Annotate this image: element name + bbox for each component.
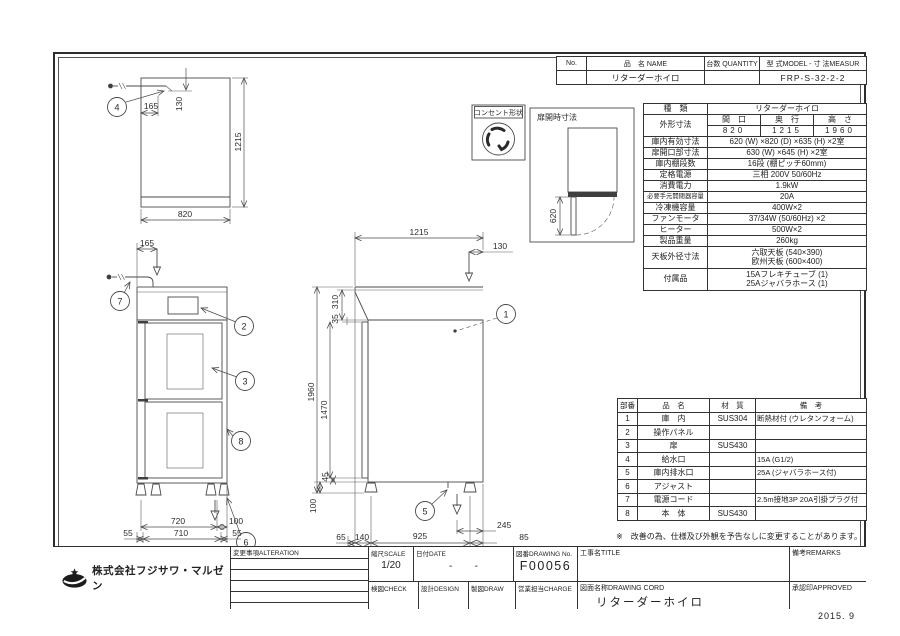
- title-cell: 工事名TITLE: [577, 547, 789, 581]
- balloon-8: 8: [238, 437, 243, 447]
- balloon-1: 1: [503, 310, 508, 320]
- date-value: - -: [414, 561, 513, 572]
- spec-label: ファンモータ: [644, 214, 708, 225]
- dim-side-245: 245: [497, 520, 511, 530]
- scale-cell: 縮尺SCALE 1/20: [368, 547, 413, 581]
- issue-date: 2015. 9: [818, 611, 855, 621]
- company-name: 株式会社フジサワ・マルゼン: [92, 563, 230, 593]
- spec-label: 付属品: [644, 269, 708, 291]
- water-inlet-icon: [108, 83, 172, 91]
- dim-side-310: 310: [330, 295, 340, 309]
- date-cell: 日付DATE - -: [413, 547, 513, 581]
- door-open-detail: 扉開時寸法 620: [530, 108, 634, 242]
- dim-front-165: 165: [140, 238, 154, 248]
- parts-header-remarks: 備 考: [756, 399, 867, 413]
- spec-value: リターダーホイロ: [708, 104, 867, 115]
- spec-value: 620 (W) ×820 (D) ×635 (H) ×2室: [708, 137, 867, 148]
- spec-value: 37/34W (50/60Hz) ×2: [708, 214, 867, 225]
- spec-value: 400W×2: [708, 203, 867, 214]
- dim-front-710: 710: [174, 528, 188, 538]
- product-name: リターダーホイロ: [587, 71, 705, 85]
- col-model-header: 型 式MODEL - 寸 法MEASUR: [760, 57, 867, 71]
- spec-label: ヒーター: [644, 225, 708, 236]
- spec-label: 扉開口部寸法: [644, 148, 708, 159]
- side-view: 1215 130 310 35 1960 1470 45 100: [306, 227, 529, 546]
- dim-side-140: 140: [355, 532, 369, 542]
- dim-side-65: 65: [336, 532, 346, 542]
- outlet-shape-detail: コンセント形状: [472, 105, 525, 160]
- alteration-empty-row: [231, 591, 368, 602]
- spec-label: 消費電力: [644, 181, 708, 192]
- alteration-empty-row: [231, 602, 368, 613]
- locking-outlet-icon: [487, 128, 508, 149]
- charge-cell: 営業担当CHARGE: [515, 581, 577, 609]
- draw-cell: 製図DRAW: [468, 581, 515, 609]
- col-name-header: 品 名 NAME: [587, 57, 705, 71]
- spec-value: 1.9kW: [708, 181, 867, 192]
- alteration-empty-row: [231, 580, 368, 591]
- spec-value: 16段 (棚ピッチ60mm): [708, 159, 867, 170]
- alteration-empty-row: [231, 569, 368, 580]
- dim-door-open-620: 620: [548, 209, 558, 223]
- spec-label: 定格電源: [644, 170, 708, 181]
- dim-front-100: 100: [229, 516, 243, 526]
- front-view: 165 720 100 55 710 55 7 2 3 8 6: [107, 238, 256, 552]
- parts-row: 1庫 内SUS304断熱材付 (ウレタンフォーム): [618, 412, 867, 426]
- dim-side-1960: 1960: [306, 382, 316, 401]
- dim-plan-165: 165: [144, 101, 158, 111]
- spec-label: 天板外径寸法: [644, 247, 708, 269]
- design-cell: 設計DESIGN: [418, 581, 468, 609]
- scale-value: 1/20: [369, 560, 413, 571]
- plan-view: 165 130 820 1215 4: [108, 68, 249, 224]
- balloon-5: 5: [422, 507, 427, 517]
- parts-row: 4給水口15A (G1/2): [618, 453, 867, 467]
- dim-side-45: 45: [320, 472, 330, 482]
- spec-label: 製品重量: [644, 236, 708, 247]
- name-model-table: No. 品 名 NAME 台数 QUANTITY 型 式MODEL - 寸 法M…: [556, 56, 867, 85]
- outlet-shape-label: コンセント形状: [474, 108, 523, 117]
- balloon-2: 2: [241, 322, 246, 332]
- dim-side-925: 925: [413, 531, 427, 541]
- spec-value: 欧州天板 (600×400): [709, 258, 865, 266]
- parts-row: 2操作パネル: [618, 426, 867, 440]
- company-logo: [61, 567, 88, 589]
- dim-front-55r: 55: [232, 528, 242, 538]
- dim-plan-130: 130: [174, 97, 184, 111]
- spec-label: 必要手元開閉器容量: [644, 192, 708, 203]
- parts-header-no: 部番: [618, 399, 638, 413]
- parts-row: 8本 体SUS430: [618, 507, 867, 521]
- spec-label: 冷凍機容量: [644, 203, 708, 214]
- drawing-cord-cell: 図面名称DRAWING CORD リターダーホイロ: [577, 581, 789, 609]
- dim-front-720: 720: [171, 516, 185, 526]
- spec-label: 外形寸法: [644, 115, 708, 137]
- dim-side-100: 100: [308, 499, 318, 513]
- door-open-label: 扉開時寸法: [537, 112, 577, 122]
- spec-label: 種 類: [644, 104, 708, 115]
- alteration-table: 変更事項ALTERATION: [230, 547, 368, 609]
- drawing-title: リターダーホイロ: [596, 594, 704, 610]
- dim-plan-1215: 1215: [233, 132, 243, 151]
- spec-value: 630 (W) ×645 (H) ×2室: [708, 148, 867, 159]
- parts-table: 部番 品 名 材 質 備 考 1庫 内SUS304断熱材付 (ウレタンフォーム)…: [617, 398, 867, 521]
- drawing-number: F00056: [514, 559, 577, 573]
- spec-value: 三相 200V 50/60Hz: [708, 170, 867, 181]
- dim-side-35: 35: [330, 314, 340, 324]
- col-no-header: No.: [557, 57, 587, 71]
- spec-label: 庫内棚段数: [644, 159, 708, 170]
- balloon-3: 3: [242, 377, 247, 387]
- dim-front-55l: 55: [123, 528, 133, 538]
- title-block: 株式会社フジサワ・マルゼン 変更事項ALTERATION 縮尺SCALE 1/2…: [53, 546, 866, 608]
- model-number: FRP-S-32-2-2: [760, 71, 867, 85]
- remarks-cell: 備考REMARKS: [789, 547, 866, 581]
- company-area: 株式会社フジサワ・マルゼン: [53, 547, 230, 609]
- spec-value: 260kg: [708, 236, 867, 247]
- dim-side-130: 130: [493, 241, 507, 251]
- spec-table: 種 類リターダーホイロ 外形寸法間 口奥 行高 さ 82012151960 庫内…: [643, 103, 867, 291]
- power-cord-icon: [107, 274, 153, 287]
- spec-value: 500W×2: [708, 225, 867, 236]
- col-qty-header: 台数 QUANTITY: [705, 57, 760, 71]
- alteration-header: 変更事項ALTERATION: [231, 547, 368, 558]
- parts-header-name: 品 名: [638, 399, 710, 413]
- disclaimer-note: ※ 改善の為、仕様及び外観を予告なしに変更することがあります。: [600, 531, 862, 542]
- dim-plan-820: 820: [178, 209, 192, 219]
- parts-row: 3扉SUS430: [618, 439, 867, 453]
- parts-row: 7電源コード2.5m接地3P 20A引掛プラグ付: [618, 493, 867, 507]
- check-cell: 検図CHECK: [368, 581, 418, 609]
- spec-label: 庫内有効寸法: [644, 137, 708, 148]
- parts-row: 6アジャスト: [618, 480, 867, 494]
- balloon-4: 4: [114, 103, 119, 113]
- dim-side-1215: 1215: [410, 227, 429, 237]
- dim-side-1470: 1470: [319, 400, 329, 419]
- drawing-no-cell: 図番DRAWING No. F00056: [513, 547, 577, 581]
- balloon-7: 7: [117, 297, 122, 307]
- alteration-empty-row: [231, 558, 368, 569]
- parts-row: 5庫内排水口25A (ジャバラホース付): [618, 466, 867, 480]
- spec-value: 20A: [708, 192, 867, 203]
- spec-value: 25Aジャバラホース (1): [709, 280, 865, 288]
- parts-header-material: 材 質: [710, 399, 756, 413]
- approved-cell: 承認印APPROVED: [789, 581, 866, 609]
- dim-side-85: 85: [519, 532, 529, 542]
